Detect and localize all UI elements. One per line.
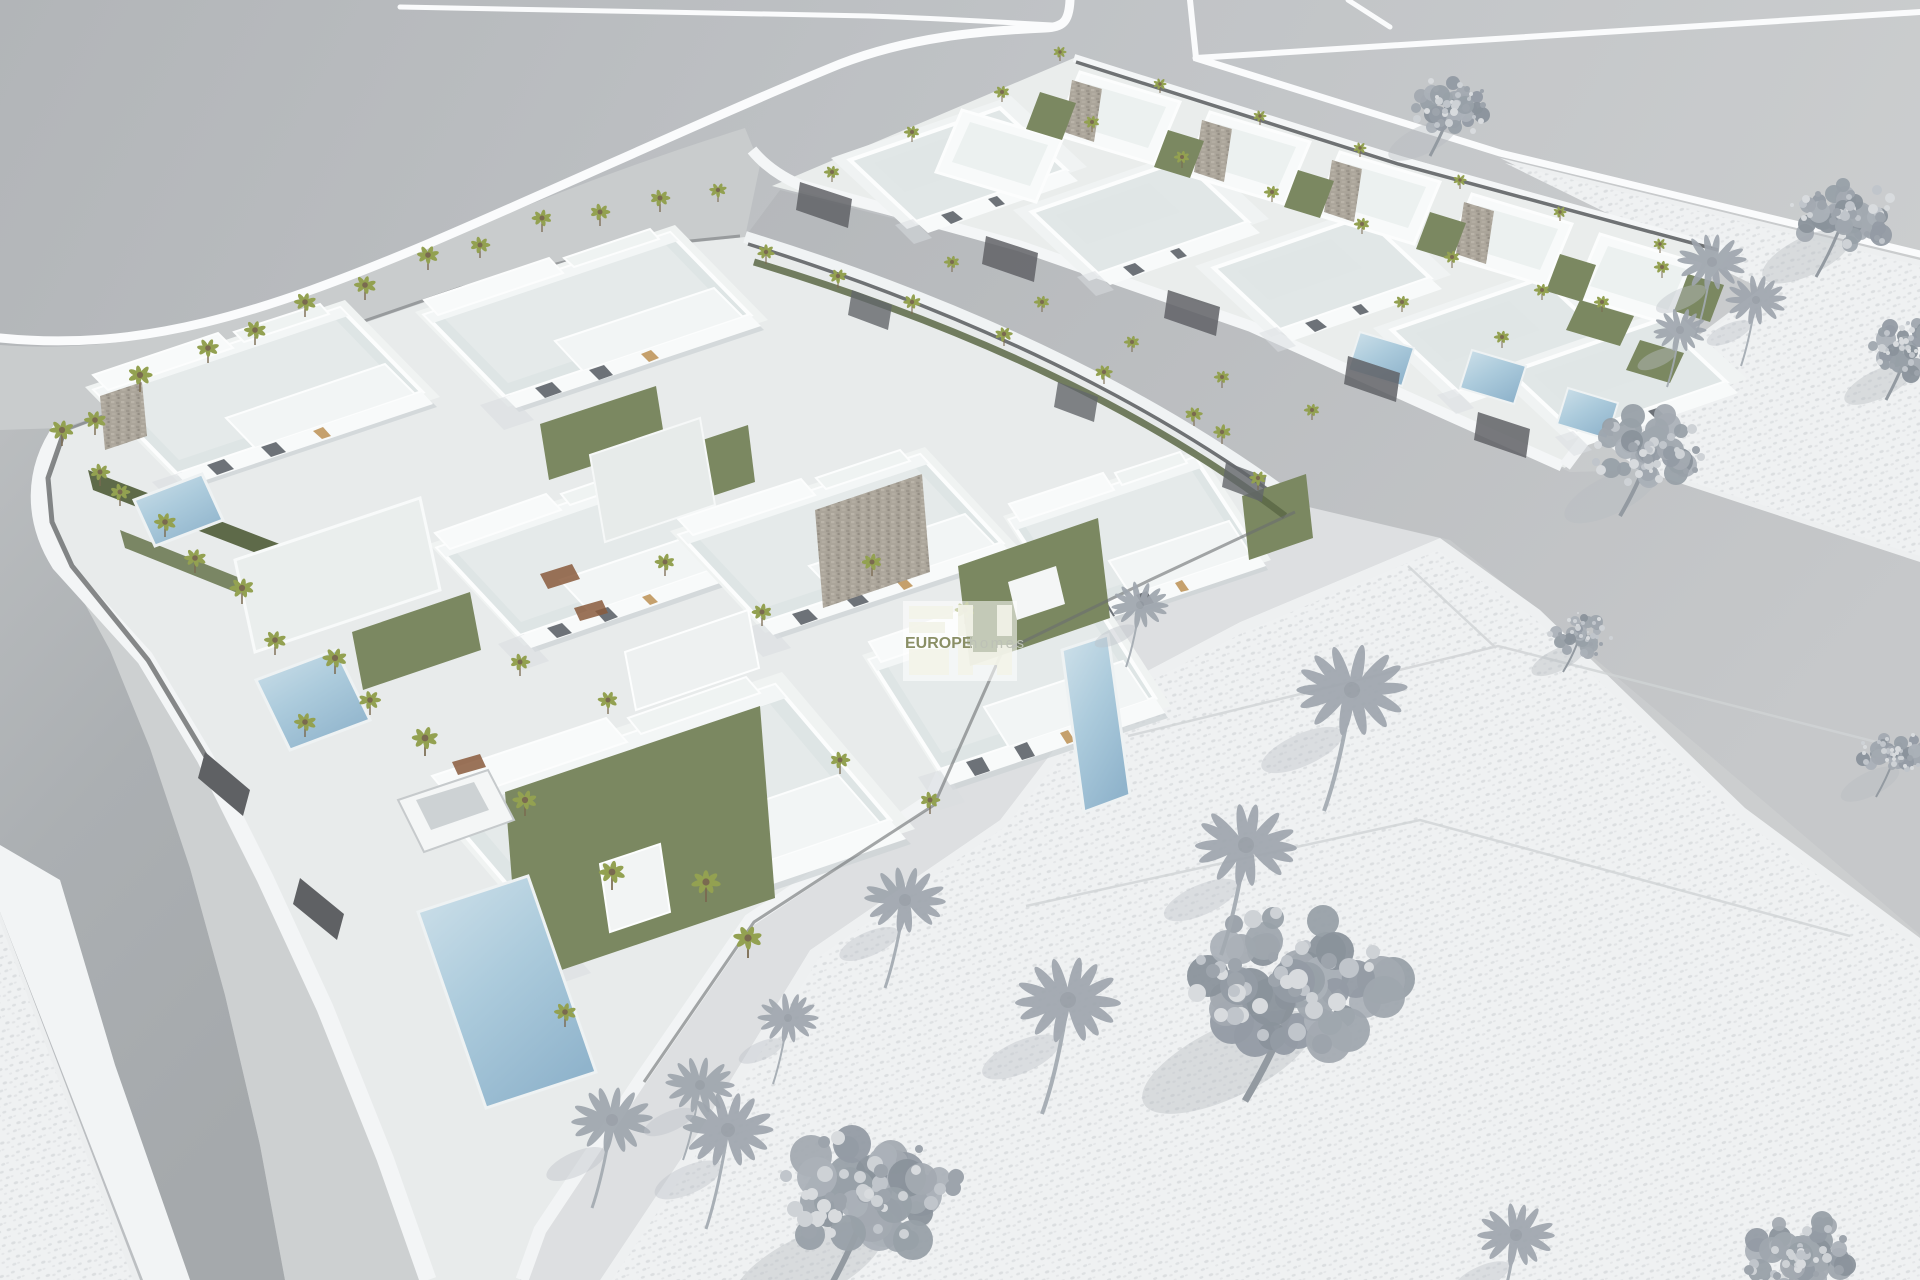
svg-text:EUROPE: EUROPE: [905, 635, 973, 652]
svg-text:homes: homes: [969, 635, 1027, 652]
